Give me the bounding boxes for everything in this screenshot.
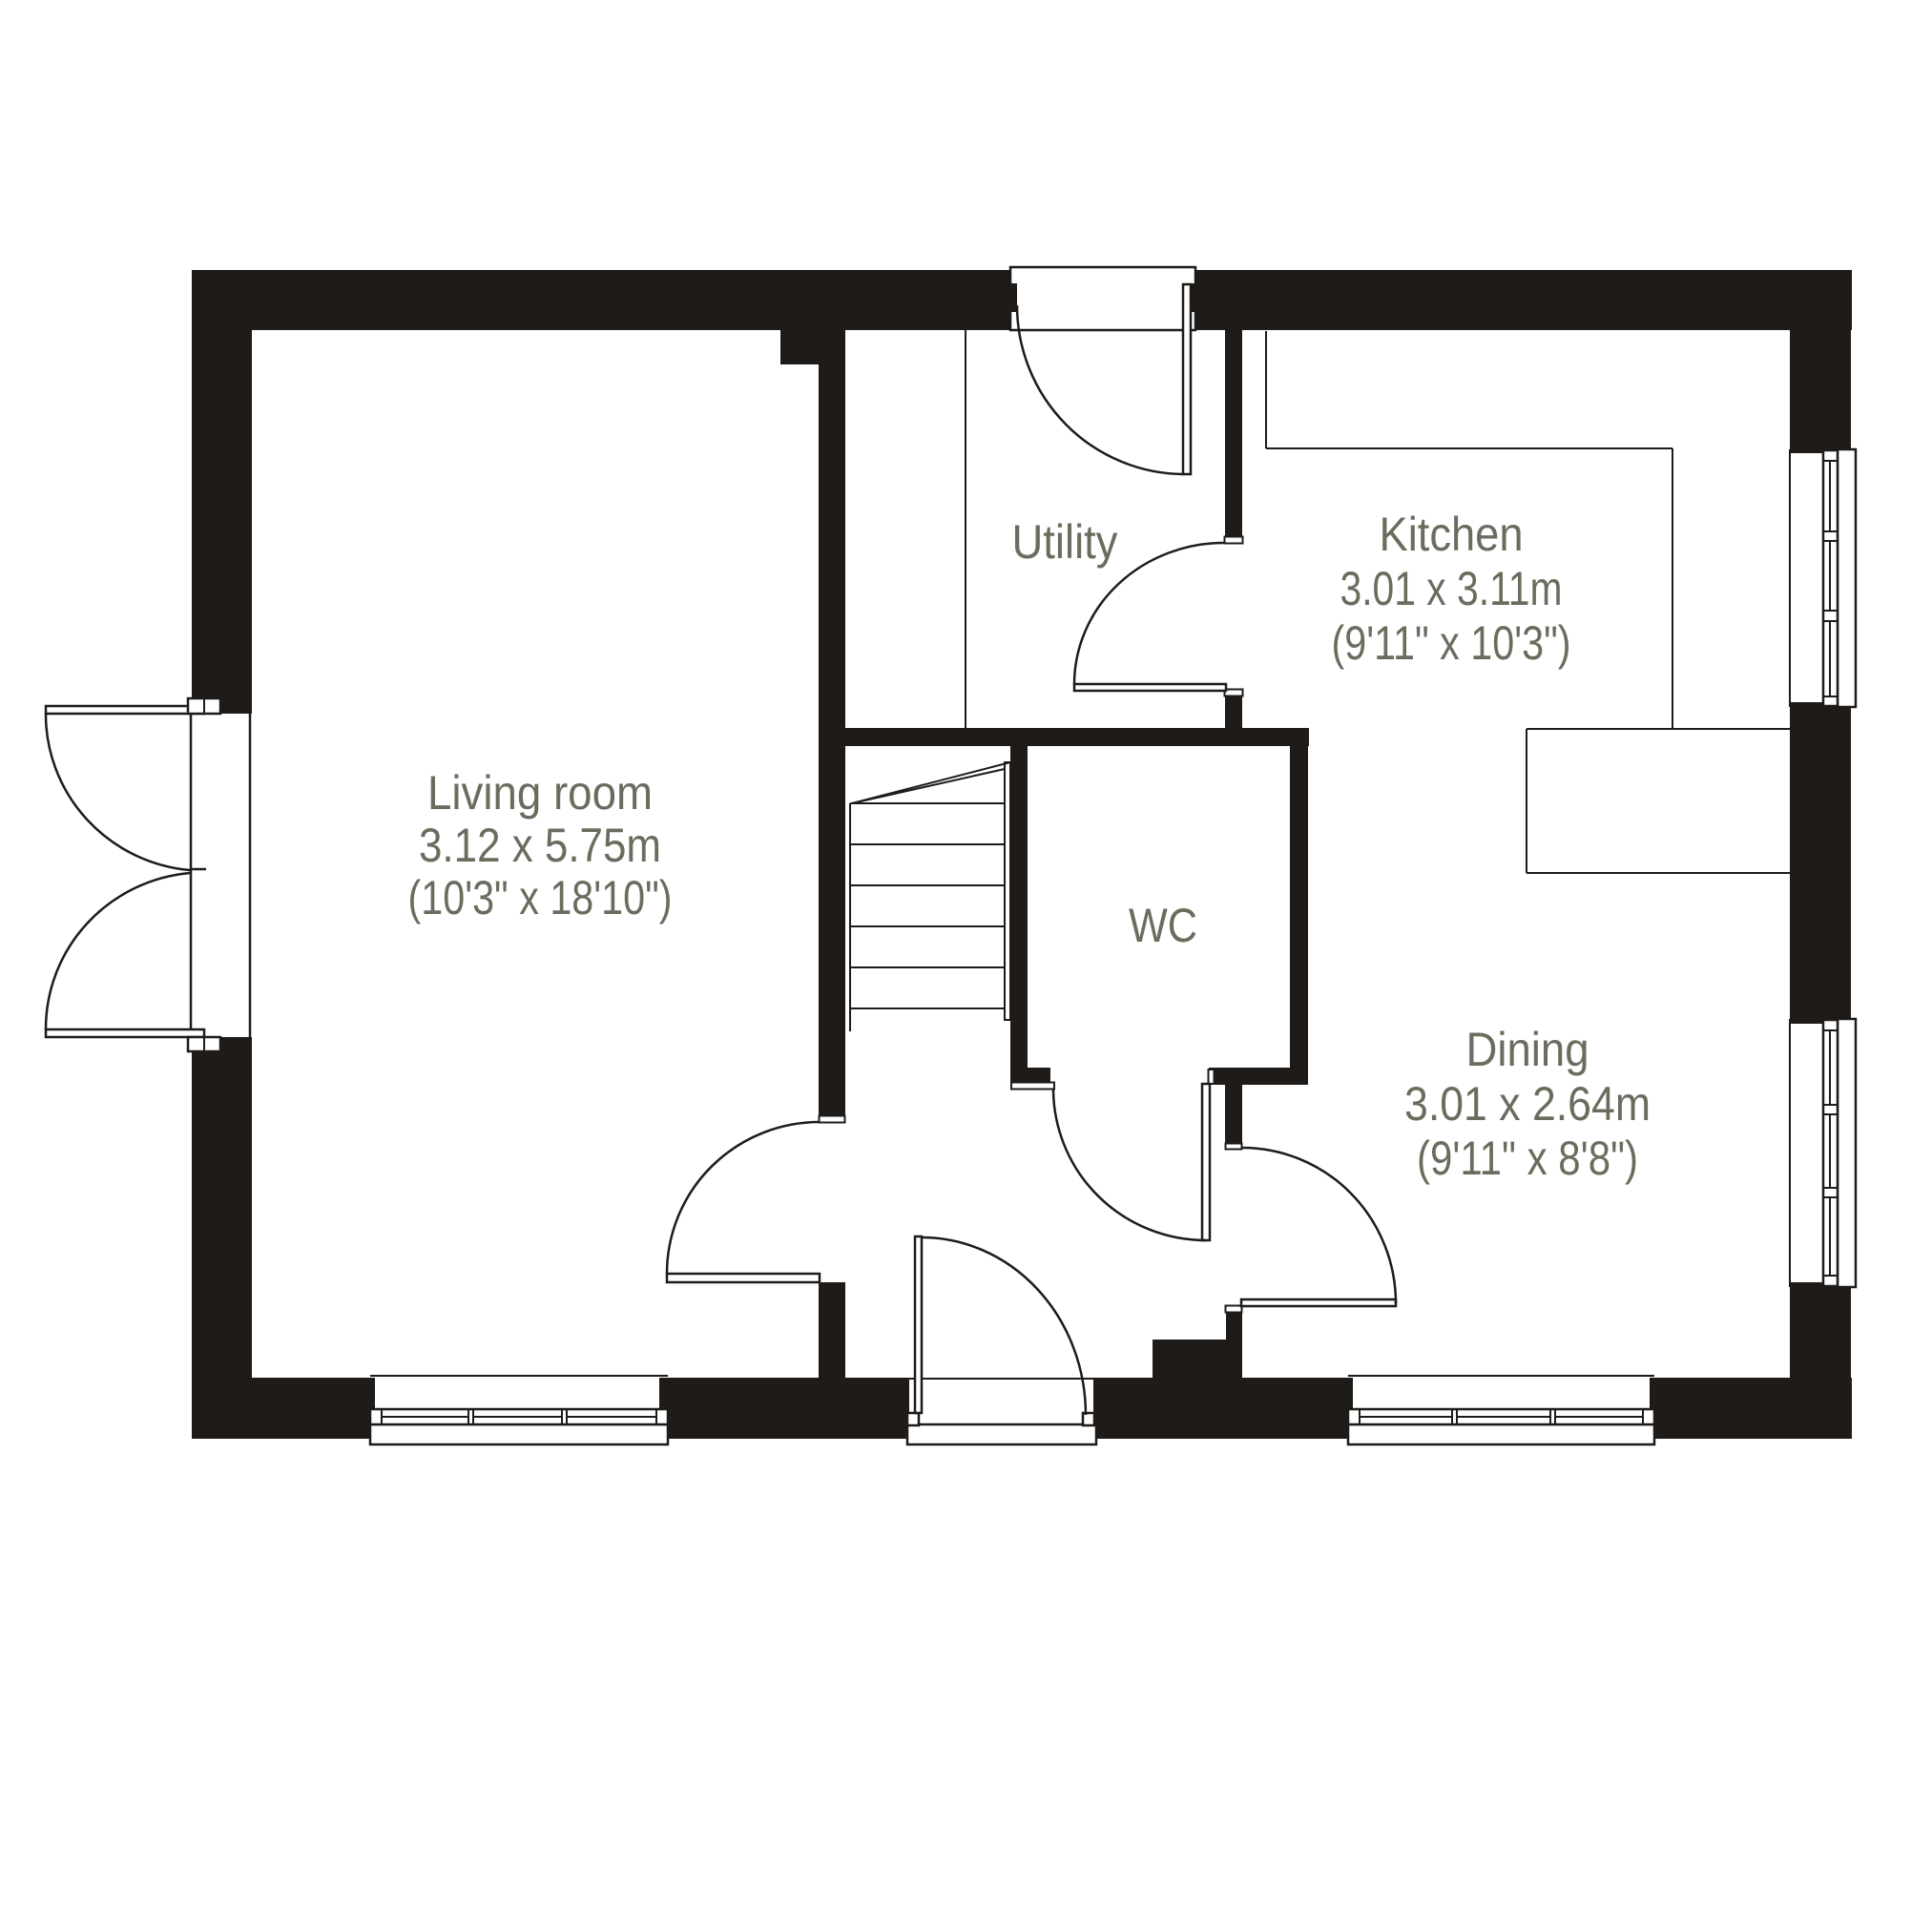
svg-text:3.01 x 2.64m: 3.01 x 2.64m [1404, 1077, 1651, 1131]
svg-text:WC: WC [1129, 899, 1197, 952]
svg-text:Kitchen: Kitchen [1380, 508, 1524, 561]
svg-text:Living room: Living room [427, 766, 653, 820]
svg-text:3.01 x 3.11m: 3.01 x 3.11m [1340, 562, 1563, 615]
svg-text:(9'11" x 8'8"): (9'11" x 8'8") [1417, 1132, 1638, 1185]
svg-text:Dining: Dining [1466, 1023, 1589, 1076]
svg-text:Utility: Utility [1012, 515, 1118, 569]
svg-text:(10'3" x 18'10"): (10'3" x 18'10") [408, 871, 673, 924]
svg-text:(9'11" x 10'3"): (9'11" x 10'3") [1332, 616, 1571, 670]
svg-text:3.12 x 5.75m: 3.12 x 5.75m [419, 819, 661, 872]
